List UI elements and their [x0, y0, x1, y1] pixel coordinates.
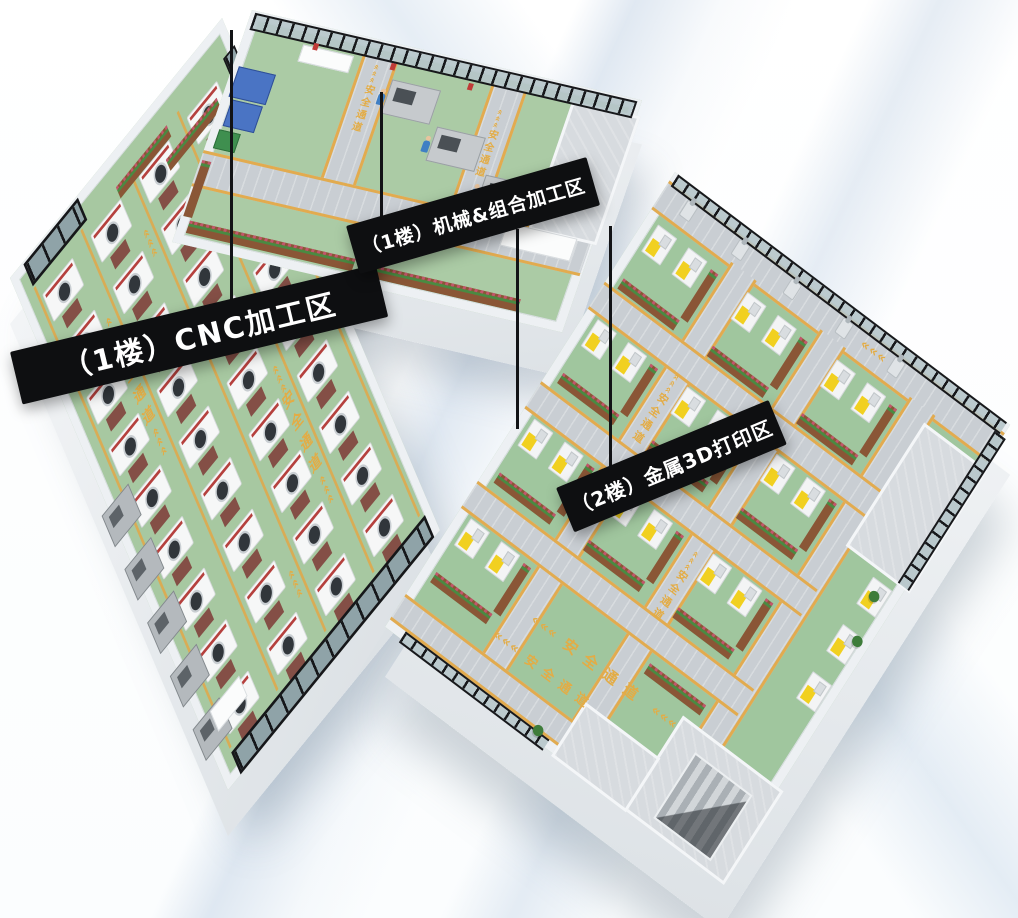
- mech-label-pointer-line: [516, 229, 519, 429]
- fire-extinguisher: [467, 83, 474, 91]
- lane-chevron-arrows: «««: [661, 371, 682, 397]
- machining-center: [381, 79, 441, 124]
- mech-label-pointer-line: [380, 92, 383, 218]
- printer-window: [813, 681, 827, 697]
- factory-3d-floorplan: ««« 安全通道 ««« ««« 安全通道 ««« ««« «««: [0, 0, 1018, 918]
- printer-window: [535, 428, 549, 444]
- print-label-pointer-line: [609, 226, 612, 466]
- cnc-label-pointer-line: [230, 30, 233, 302]
- machine-control-panel: [154, 611, 169, 634]
- printer-window: [748, 302, 762, 318]
- lane-chevron-arrows: «««: [528, 611, 561, 643]
- printer-window: [628, 352, 642, 368]
- machine-control-panel: [177, 665, 192, 688]
- metal-3d-printer: [796, 671, 832, 712]
- lane-chevron-arrows: «««: [680, 548, 701, 574]
- blue-machine: [223, 99, 263, 133]
- printer-window: [658, 234, 672, 250]
- printer-window: [837, 369, 851, 385]
- machine-control-panel: [132, 558, 147, 581]
- printer-window: [807, 487, 821, 503]
- metal-3d-printer: [641, 224, 677, 265]
- printer-window: [501, 551, 515, 567]
- planter-hedge: [430, 572, 492, 624]
- mech-top-wall-windows: [249, 13, 637, 119]
- printer-window: [687, 396, 701, 412]
- printer-window: [744, 586, 758, 602]
- machine-control-panel: [109, 505, 124, 528]
- green-machine: [213, 129, 241, 153]
- printer-window: [777, 464, 791, 480]
- printer-window: [565, 451, 579, 467]
- machine-control-panel: [200, 718, 215, 741]
- printer-window: [867, 392, 881, 408]
- printer-window: [654, 519, 668, 535]
- cnc-machine: [90, 198, 132, 263]
- printer-window: [778, 325, 792, 341]
- printer-window: [713, 563, 727, 579]
- printer-window: [471, 528, 485, 544]
- printer-window: [689, 257, 703, 273]
